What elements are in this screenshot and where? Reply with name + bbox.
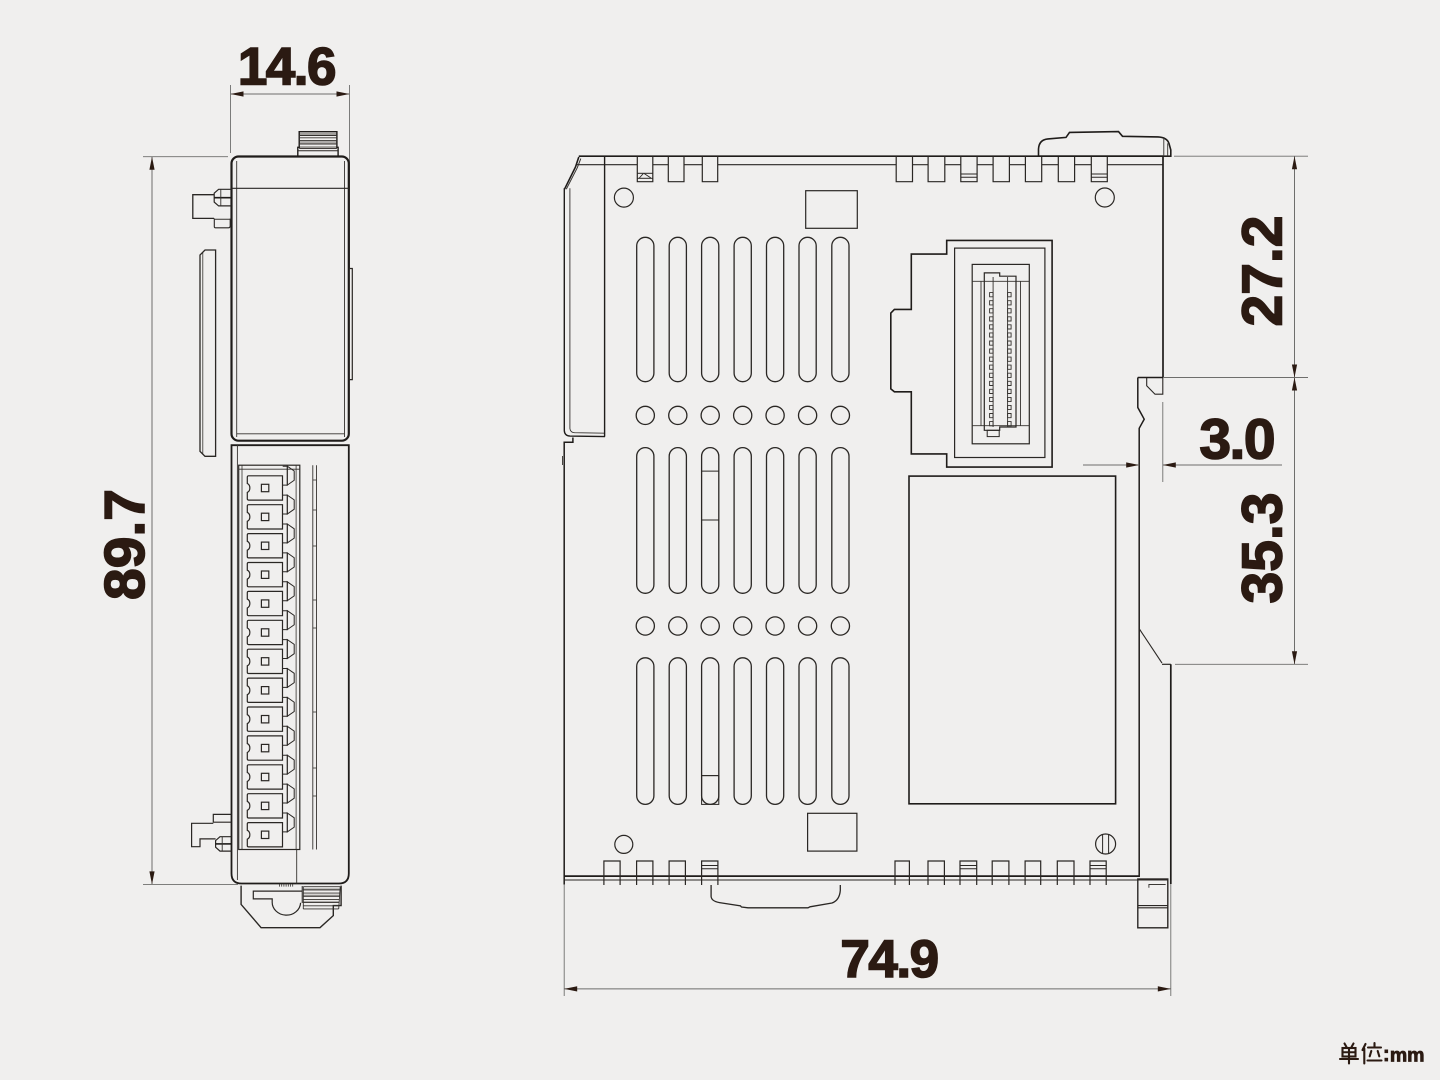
svg-text:74.9: 74.9	[840, 930, 937, 989]
svg-text:3.0: 3.0	[1199, 407, 1274, 471]
svg-text:mm: mm	[1390, 1045, 1425, 1067]
svg-text:35.3: 35.3	[1231, 493, 1295, 604]
svg-text:89.7: 89.7	[93, 489, 157, 600]
svg-text:27.2: 27.2	[1231, 216, 1295, 327]
svg-text:14.6: 14.6	[238, 37, 335, 96]
